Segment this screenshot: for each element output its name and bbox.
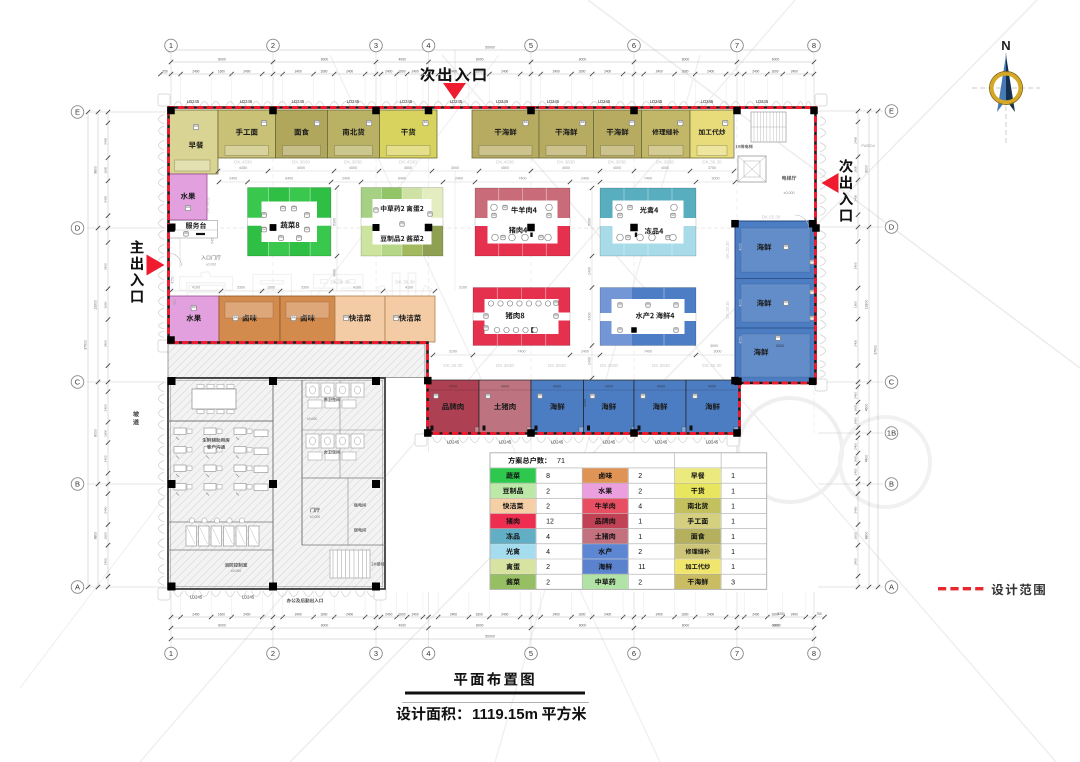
svg-text:4000: 4000 [398, 624, 406, 628]
svg-text:1600: 1600 [854, 166, 858, 173]
svg-text:DK.4330: DK.4330 [399, 160, 417, 165]
svg-text:1600: 1600 [218, 70, 225, 74]
svg-text:550: 550 [173, 299, 177, 305]
svg-text:5: 5 [529, 649, 533, 658]
svg-text:4000: 4000 [562, 166, 570, 170]
svg-text:750: 750 [162, 70, 168, 74]
svg-text:LD245: LD245 [706, 440, 719, 445]
svg-text:2: 2 [546, 564, 550, 571]
svg-text:4100: 4100 [353, 286, 361, 290]
svg-text:2400: 2400 [854, 443, 858, 450]
svg-text:2400: 2400 [656, 613, 663, 617]
svg-text:4000: 4000 [661, 166, 669, 170]
svg-text:B: B [75, 480, 80, 489]
svg-text:13300: 13300 [865, 300, 869, 310]
svg-text:2400: 2400 [501, 70, 508, 74]
svg-text:5300: 5300 [588, 218, 592, 226]
svg-text:2400: 2400 [243, 70, 250, 74]
svg-text:DK.32.30: DK.32.30 [725, 241, 730, 259]
svg-text:1600: 1600 [398, 70, 405, 74]
svg-text:4450: 4450 [239, 166, 247, 170]
svg-text:2400: 2400 [104, 455, 108, 462]
svg-text:2400: 2400 [104, 506, 108, 513]
svg-text:DK.3830: DK.3830 [344, 160, 362, 165]
svg-text:2400: 2400 [346, 70, 353, 74]
svg-text:2400: 2400 [412, 613, 419, 617]
svg-text:2400: 2400 [104, 196, 108, 203]
svg-text:9000: 9000 [865, 165, 869, 173]
svg-text:6: 6 [632, 41, 636, 50]
svg-text:1600: 1600 [476, 613, 483, 617]
svg-text:LD245: LD245 [187, 99, 200, 104]
svg-text:1: 1 [731, 534, 735, 541]
svg-text:8000: 8000 [579, 624, 587, 628]
svg-text:FWZ/D4: FWZ/D4 [861, 144, 874, 148]
svg-text:8000: 8000 [579, 58, 587, 62]
svg-text:2400: 2400 [385, 613, 392, 617]
svg-text:2: 2 [638, 488, 642, 495]
svg-text:37900: 37900 [874, 345, 878, 355]
svg-text:4: 4 [546, 549, 550, 556]
svg-text:3100: 3100 [449, 350, 457, 354]
svg-text:E: E [75, 108, 80, 117]
svg-text:2400: 2400 [346, 613, 353, 617]
svg-text:1: 1 [169, 41, 173, 50]
svg-text:3750: 3750 [708, 166, 716, 170]
svg-text:3: 3 [731, 579, 735, 586]
svg-text:2400: 2400 [752, 70, 759, 74]
svg-text:1600: 1600 [320, 70, 327, 74]
svg-text:2: 2 [546, 488, 550, 495]
svg-text:1600: 1600 [681, 613, 688, 617]
svg-text:±0.000: ±0.000 [310, 515, 320, 519]
svg-text:A: A [75, 583, 80, 592]
svg-text:1600: 1600 [104, 430, 108, 437]
svg-text:3300: 3300 [237, 286, 245, 290]
svg-text:6400: 6400 [398, 177, 406, 181]
svg-text:LD245: LD245 [551, 440, 564, 445]
svg-text:2400: 2400 [854, 262, 858, 269]
svg-text:DK.36.30: DK.36.30 [443, 363, 463, 368]
svg-text:8800: 8800 [94, 532, 98, 540]
svg-text:6: 6 [632, 649, 636, 658]
svg-text:1600: 1600 [854, 532, 858, 539]
svg-text:1600: 1600 [320, 613, 327, 617]
svg-text:8: 8 [812, 41, 816, 50]
svg-text:2400: 2400 [707, 613, 714, 617]
svg-text:1B: 1B [887, 429, 896, 438]
svg-text:A: A [889, 583, 894, 592]
svg-text:DK.3830: DK.3830 [548, 363, 566, 368]
svg-text:4000: 4000 [501, 385, 509, 389]
svg-text:2400: 2400 [295, 70, 302, 74]
svg-text:2400: 2400 [791, 613, 798, 617]
svg-text:8000: 8000 [321, 624, 329, 628]
svg-text:2400: 2400 [450, 613, 457, 617]
svg-text:1600: 1600 [771, 70, 778, 74]
svg-text:1: 1 [638, 534, 642, 541]
svg-text:LD245: LD245 [650, 99, 663, 104]
svg-text:1119.15m: 1119.15m [472, 706, 538, 723]
svg-text:DK.55.30: DK.55.30 [762, 215, 781, 220]
svg-text:C: C [75, 378, 81, 387]
svg-text:3000: 3000 [714, 350, 722, 354]
svg-text:2400: 2400 [854, 468, 858, 475]
svg-text:6400: 6400 [285, 177, 293, 181]
svg-text:2400: 2400 [104, 263, 108, 270]
svg-text:DK.3830: DK.3830 [557, 160, 575, 165]
svg-text:N: N [1001, 38, 1010, 53]
svg-text:4050: 4050 [449, 385, 457, 389]
svg-text:2: 2 [638, 579, 642, 586]
svg-text:2: 2 [638, 473, 642, 480]
svg-text:DK.4330: DK.4330 [496, 160, 514, 165]
svg-text:2: 2 [271, 41, 275, 50]
svg-text:4000: 4000 [657, 385, 665, 389]
svg-text:4000: 4000 [333, 269, 337, 277]
svg-text:1: 1 [731, 473, 735, 480]
svg-text:4500: 4500 [501, 166, 509, 170]
svg-text:2400: 2400 [104, 340, 108, 347]
svg-text:1: 1 [731, 504, 735, 511]
svg-text:4000: 4000 [739, 299, 743, 307]
svg-text:2: 2 [638, 549, 642, 556]
svg-text:2400: 2400 [385, 70, 392, 74]
svg-text:8800: 8800 [865, 532, 869, 540]
svg-text:1600: 1600 [578, 70, 585, 74]
svg-text:2400: 2400 [455, 177, 463, 181]
svg-text:2400: 2400 [854, 506, 858, 513]
svg-text:±0.000: ±0.000 [784, 191, 795, 195]
svg-text:2400: 2400 [192, 613, 199, 617]
svg-text:1600: 1600 [854, 301, 858, 308]
svg-text:7: 7 [735, 41, 739, 50]
svg-text:11: 11 [638, 564, 645, 571]
svg-text:4000: 4000 [605, 385, 613, 389]
svg-text:1600: 1600 [104, 532, 108, 539]
svg-text:1: 1 [731, 488, 735, 495]
svg-text:4000: 4000 [739, 243, 743, 251]
svg-text:3000: 3000 [712, 177, 720, 181]
svg-text:2400: 2400 [604, 70, 611, 74]
svg-text:2400: 2400 [412, 70, 419, 74]
svg-text:LD245: LD245 [756, 99, 769, 104]
svg-text:2400: 2400 [791, 70, 798, 74]
svg-text:4050: 4050 [739, 336, 743, 344]
svg-text:DK.38.30: DK.38.30 [395, 280, 415, 285]
svg-text:2400: 2400 [854, 137, 858, 144]
svg-text:1600: 1600 [104, 301, 108, 308]
svg-text:2400: 2400 [588, 357, 592, 365]
svg-text:2400: 2400 [854, 558, 858, 565]
svg-text:2400: 2400 [104, 404, 108, 411]
svg-text:2400: 2400 [854, 195, 858, 202]
svg-text:8000: 8000 [94, 429, 98, 437]
svg-text:6000: 6000 [772, 58, 780, 62]
svg-text:LD245: LD245 [400, 99, 413, 104]
svg-text:DK.3830: DK.3830 [496, 363, 514, 368]
svg-text:LD245: LD245 [603, 440, 616, 445]
svg-text:3: 3 [374, 41, 378, 50]
svg-text:2: 2 [546, 504, 550, 511]
svg-text:2400: 2400 [707, 70, 714, 74]
svg-text:4600: 4600 [865, 404, 869, 412]
svg-text:9800: 9800 [94, 166, 98, 174]
svg-text:8000: 8000 [321, 58, 329, 62]
svg-text:8000: 8000 [218, 624, 226, 628]
svg-text:2400: 2400 [104, 138, 108, 145]
svg-text:1600: 1600 [854, 404, 858, 411]
svg-text:2400: 2400 [450, 70, 457, 74]
svg-text:4400: 4400 [865, 455, 869, 463]
svg-text:D: D [889, 223, 895, 232]
svg-text:LD245: LD245 [701, 99, 714, 104]
svg-text:1: 1 [169, 649, 173, 658]
svg-text:LD245: LD245 [447, 440, 460, 445]
svg-text:LD245: LD245 [242, 595, 255, 600]
svg-text:7400: 7400 [518, 350, 526, 354]
svg-text:4000: 4000 [398, 58, 406, 62]
svg-text:4: 4 [426, 649, 430, 658]
svg-text:8000: 8000 [682, 58, 690, 62]
svg-text:±0.000: ±0.000 [206, 263, 216, 267]
svg-text:±0.000: ±0.000 [307, 417, 317, 421]
svg-text:3100: 3100 [459, 286, 467, 290]
svg-text:2400: 2400 [342, 177, 350, 181]
svg-text:8000: 8000 [476, 58, 484, 62]
svg-text:LD245: LD245 [655, 440, 668, 445]
svg-text:6300: 6300 [776, 344, 784, 348]
svg-text:DK.3830: DK.3830 [608, 160, 626, 165]
svg-text:5300: 5300 [333, 218, 337, 226]
svg-text:1600: 1600 [104, 167, 108, 174]
svg-text:2400: 2400 [104, 558, 108, 565]
svg-text:4000: 4000 [553, 385, 561, 389]
svg-text:2400: 2400 [854, 340, 858, 347]
svg-text:1: 1 [731, 519, 735, 526]
svg-text:LD245: LD245 [240, 99, 253, 104]
svg-text:750: 750 [816, 612, 822, 616]
svg-text:2400: 2400 [553, 70, 560, 74]
svg-text:DK.38.30: DK.38.30 [725, 301, 730, 319]
svg-text:7400: 7400 [644, 350, 652, 354]
svg-text:8: 8 [812, 649, 816, 658]
svg-text:4: 4 [546, 534, 550, 541]
svg-text:2400: 2400 [854, 417, 858, 424]
svg-text:2: 2 [271, 649, 275, 658]
svg-text:2400: 2400 [581, 177, 589, 181]
svg-text:7: 7 [735, 649, 739, 658]
svg-text:1600: 1600 [578, 613, 585, 617]
svg-text:13300: 13300 [94, 300, 98, 310]
svg-text:C: C [889, 378, 895, 387]
svg-text:DK.3830: DK.3830 [656, 160, 674, 165]
svg-text:4100: 4100 [405, 286, 413, 290]
svg-text:8000: 8000 [476, 624, 484, 628]
svg-text:2: 2 [546, 579, 550, 586]
svg-text:2400: 2400 [192, 70, 199, 74]
svg-text:1600: 1600 [267, 286, 275, 290]
svg-text:LD245: LD245 [190, 595, 203, 600]
svg-text:4000: 4000 [349, 166, 357, 170]
svg-text:4300: 4300 [583, 399, 587, 407]
svg-text:DK.3830: DK.3830 [600, 363, 618, 368]
svg-text:1600: 1600 [681, 70, 688, 74]
svg-text:50000: 50000 [485, 635, 495, 639]
svg-text:4500: 4500 [404, 166, 412, 170]
svg-text:3000: 3000 [710, 344, 718, 348]
svg-text:4300: 4300 [588, 313, 592, 321]
svg-text:8: 8 [546, 473, 550, 480]
svg-text:DK.4330: DK.4330 [234, 160, 252, 165]
svg-text:2400: 2400 [229, 177, 237, 181]
svg-text:LD245: LD245 [547, 99, 560, 104]
svg-text:7400: 7400 [519, 177, 527, 181]
svg-text:3000: 3000 [451, 166, 459, 170]
svg-text:4050: 4050 [708, 385, 716, 389]
svg-text:4000: 4000 [613, 166, 621, 170]
svg-text:2400: 2400 [854, 392, 858, 399]
svg-text:LD245: LD245 [598, 99, 611, 104]
svg-text:2400: 2400 [588, 267, 592, 275]
svg-text:5200: 5200 [777, 612, 784, 616]
svg-text:B: B [889, 480, 894, 489]
svg-text:2400: 2400 [752, 613, 759, 617]
svg-text:4150: 4150 [171, 276, 175, 284]
svg-text:2400: 2400 [604, 613, 611, 617]
svg-text:4000: 4000 [297, 166, 305, 170]
svg-text:DK.3830: DK.3830 [652, 363, 670, 368]
svg-text:2400: 2400 [581, 350, 589, 354]
svg-text:DK.36.30: DK.36.30 [702, 363, 722, 368]
svg-text:DK.39.30: DK.39.30 [330, 280, 350, 285]
svg-text:7400: 7400 [644, 177, 652, 181]
svg-text:8000: 8000 [218, 58, 226, 62]
svg-text:2400: 2400 [656, 70, 663, 74]
svg-text:1: 1 [731, 549, 735, 556]
svg-text:D: D [75, 224, 81, 233]
svg-text:LD245: LD245 [292, 99, 305, 104]
svg-text:LD245: LD245 [499, 440, 512, 445]
svg-text:DK.3830: DK.3830 [292, 160, 310, 165]
svg-text:50000: 50000 [485, 46, 495, 50]
svg-text:±0.000: ±0.000 [231, 569, 241, 573]
svg-text:4: 4 [638, 504, 642, 511]
svg-text:LD245: LD245 [347, 99, 360, 104]
svg-text:6000: 6000 [772, 624, 780, 628]
svg-text:1: 1 [638, 519, 642, 526]
svg-text:8000: 8000 [682, 624, 690, 628]
svg-text:LD245: LD245 [496, 99, 509, 104]
svg-text:2400: 2400 [501, 613, 508, 617]
svg-text:LD245: LD245 [450, 99, 463, 104]
svg-text:E: E [889, 107, 894, 116]
svg-text:4100: 4100 [192, 286, 200, 290]
svg-text:2400: 2400 [243, 613, 250, 617]
svg-text:1: 1 [731, 564, 735, 571]
svg-text:DK.36.30: DK.36.30 [702, 160, 722, 165]
svg-text:4: 4 [426, 41, 430, 50]
svg-text:1600: 1600 [398, 613, 405, 617]
svg-text:5: 5 [529, 41, 533, 50]
svg-text:12: 12 [546, 519, 554, 526]
svg-text:3: 3 [374, 649, 378, 658]
svg-text:2400: 2400 [553, 613, 560, 617]
svg-text:3300: 3300 [301, 286, 309, 290]
svg-text:37900: 37900 [84, 340, 88, 350]
svg-text:1600: 1600 [218, 613, 225, 617]
svg-text:71: 71 [557, 456, 565, 465]
svg-text:2400: 2400 [295, 613, 302, 617]
svg-text:1600: 1600 [854, 455, 858, 462]
